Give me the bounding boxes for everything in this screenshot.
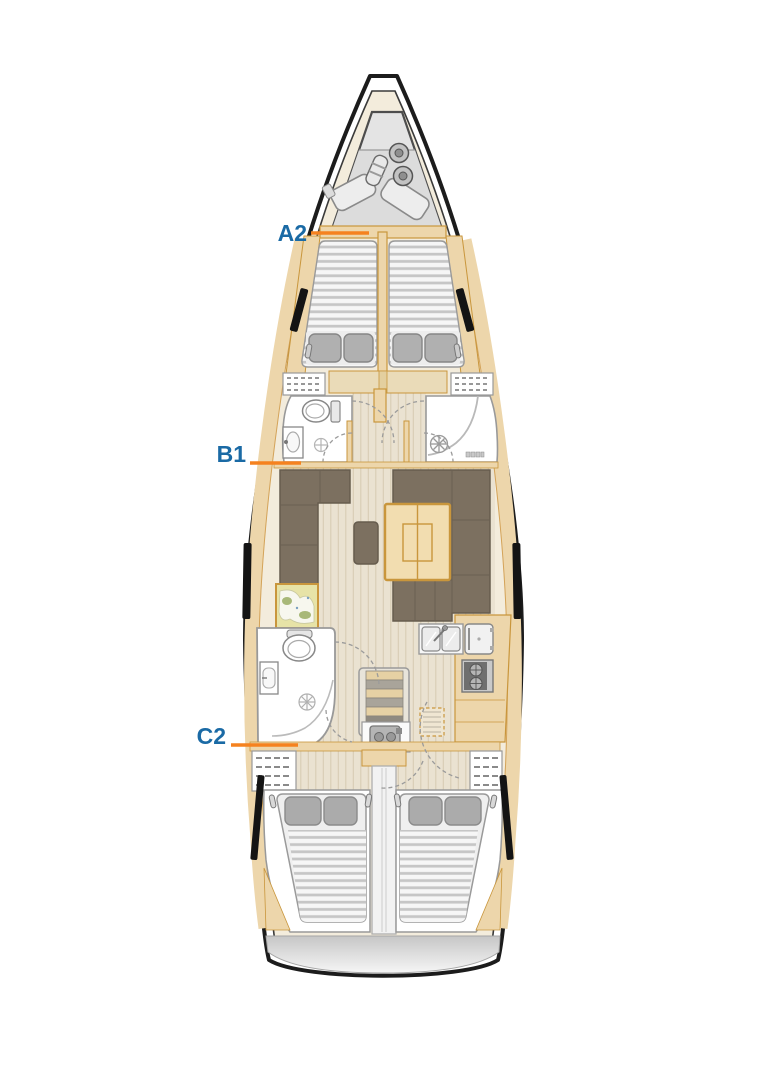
label-a2: A2 <box>278 220 307 246</box>
stbd-hanging-locker <box>470 751 502 791</box>
chart-table <box>276 584 318 628</box>
deck-plan-svg: A2 B1 C2 <box>0 0 764 1080</box>
footstool <box>354 522 378 564</box>
shower-drain-icon <box>315 439 328 452</box>
saloon-table <box>385 504 450 580</box>
forward-bulkhead <box>329 371 447 393</box>
center-partition <box>372 766 396 934</box>
washbasin-icon <box>283 427 303 458</box>
aft-port-berth <box>264 790 372 932</box>
aft-toilet-icon <box>283 630 315 661</box>
aft-head <box>257 628 335 748</box>
forward-lockers <box>283 371 493 395</box>
stove-icon <box>462 660 493 692</box>
toilet-icon <box>303 400 341 422</box>
stbd-head-door <box>404 421 409 462</box>
port-head-door <box>347 421 352 462</box>
heads-passage-floor <box>352 392 426 465</box>
saloon-bulkhead <box>274 462 498 468</box>
label-b1: B1 <box>217 441 247 467</box>
stbd-saloon-window <box>512 543 521 619</box>
aft-stbd-berth <box>394 790 502 932</box>
berth-center-divider <box>378 232 387 378</box>
drain-wheel-icon <box>431 436 448 453</box>
seacock-marks <box>466 452 484 457</box>
companionway <box>359 668 410 752</box>
aft-washbasin-icon <box>260 662 278 694</box>
aft-drain-icon <box>299 694 315 710</box>
fridge-icon <box>465 624 494 654</box>
center-partition-top <box>362 750 406 766</box>
double-sink-icon <box>419 624 463 654</box>
yacht-layout-diagram: A2 B1 C2 <box>0 0 764 1080</box>
port-saloon-window <box>242 543 251 619</box>
label-c2: C2 <box>197 723 226 749</box>
